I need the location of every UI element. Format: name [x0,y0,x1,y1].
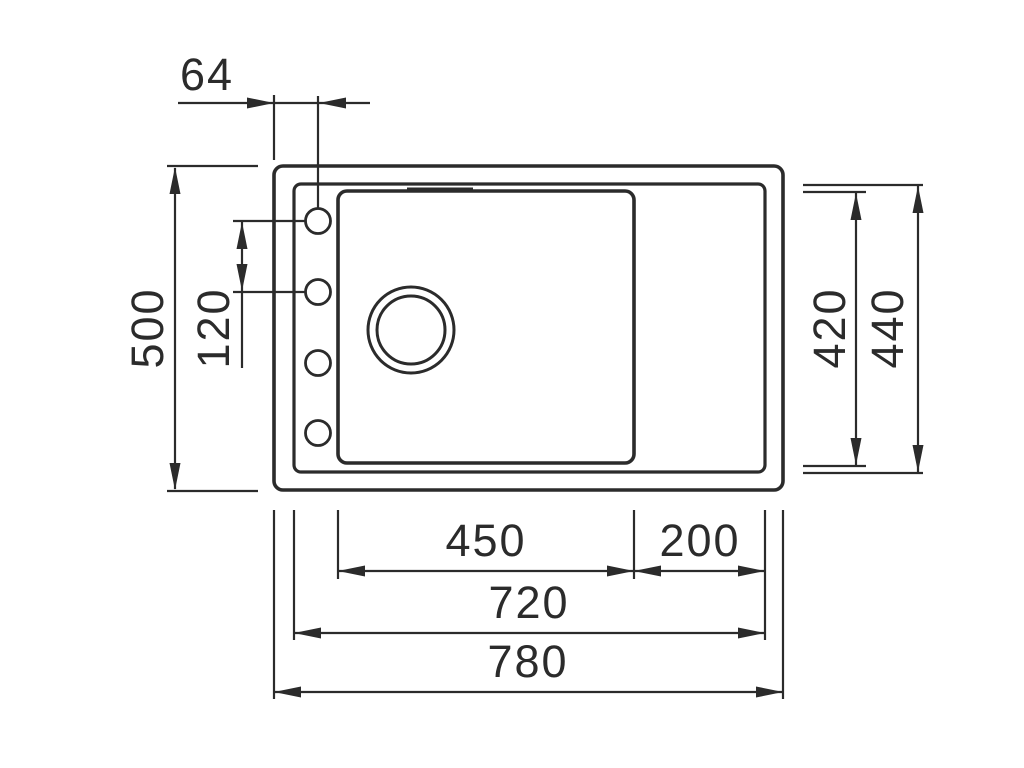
arrowhead-down [237,264,248,291]
sink-outer-edge [274,166,783,490]
dim-bowl-depth: 420 [803,192,866,466]
dim-label-overall-width: 780 [487,636,568,687]
arrowhead-up [237,222,248,249]
arrowhead-right [756,687,783,698]
sink-rim [294,184,765,472]
dim-label-bowl-depth: 420 [804,287,855,368]
faucet-hole-1 [306,209,331,234]
arrowhead-up [851,193,862,220]
arrowhead-right [247,98,274,109]
faucet-hole-2 [306,280,331,305]
dim-bowl-width: 450 [338,510,634,579]
dim-label-overall-depth: 500 [122,287,173,368]
sink-outline [274,166,783,490]
drain-inner-circle [377,296,445,364]
dim-hole-pitch: 120 [188,221,306,369]
arrowhead-left [294,628,321,639]
arrowhead-left [634,566,661,577]
arrowhead-right [738,628,765,639]
dim-drainer-width: 200 [634,510,765,640]
arrowhead-up [913,186,924,213]
dim-label-hole-offset: 64 [180,49,234,100]
sink-bowl [338,191,634,463]
arrowhead-left [274,687,301,698]
dim-label-hole-pitch: 120 [188,287,239,368]
arrowhead-left [338,566,365,577]
dim-label-drainer-width: 200 [659,515,740,566]
arrowhead-right [738,566,765,577]
dim-label-rim-depth: 440 [862,287,913,368]
arrowhead-down [913,445,924,472]
dim-label-rim-width: 720 [488,577,569,628]
dim-label-bowl-width: 450 [445,515,526,566]
faucet-hole-4 [306,421,331,446]
faucet-holes [306,209,331,446]
drawing-canvas: 64 500 120 420 440 [0,0,1024,768]
drain [368,287,454,373]
drain-outer-circle [368,287,454,373]
arrowhead-right [607,566,634,577]
arrowhead-down [170,463,181,490]
arrowhead-down [851,438,862,465]
arrowhead-left [319,98,346,109]
sink-dimension-drawing: 64 500 120 420 440 [0,0,1024,768]
faucet-hole-3 [306,351,331,376]
arrowhead-up [170,167,181,194]
